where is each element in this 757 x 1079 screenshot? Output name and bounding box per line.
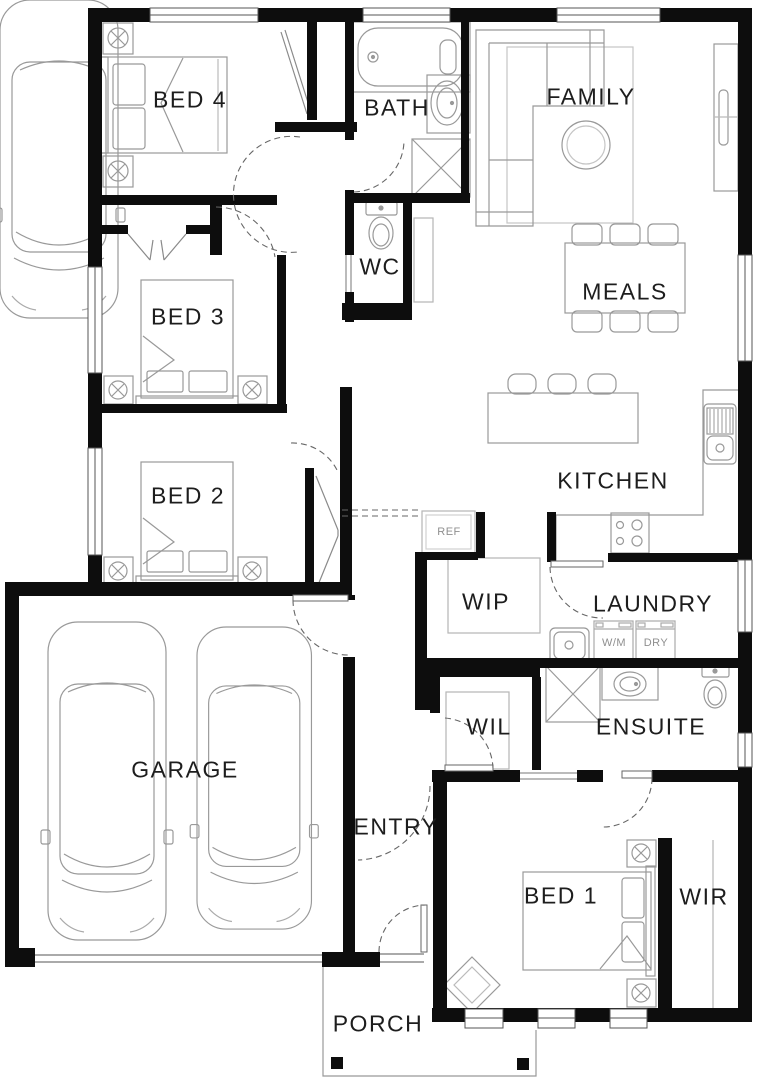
room-label-wc: WC [359, 254, 400, 281]
floor-plan-drawing [0, 0, 757, 1079]
wall-wc-west-a [345, 203, 354, 255]
wall-entry-west-b [343, 657, 355, 953]
wall-bed3-top-right [186, 225, 213, 234]
wall-wil-north [440, 665, 540, 677]
front-door-threshold [378, 954, 424, 962]
wall-robe-bottom [275, 122, 357, 132]
room-label-porch: PORCH [333, 1011, 424, 1038]
floor-plan: BED 4 BATH FAMILY WC BED 3 MEALS KITCHEN… [0, 0, 757, 1079]
walls-layer [5, 8, 752, 1070]
room-label-wip: WIP [462, 589, 510, 616]
wall-bed2-east [305, 468, 314, 595]
room-label-kitchen: KITCHEN [557, 468, 668, 495]
room-label-bed1: BED 1 [524, 883, 598, 910]
room-label-bed2: BED 2 [151, 483, 225, 510]
furniture-layer [0, 0, 738, 1076]
wall-exterior-right [738, 8, 752, 1022]
wall-wil-east [532, 677, 541, 773]
wall-hob-stub [547, 512, 556, 562]
porch-post-1 [331, 1057, 343, 1069]
wall-front [322, 952, 380, 967]
wall-bed4-bottom [102, 195, 277, 205]
wall-fridge-east [476, 512, 485, 558]
wall-garage-bottom-stub [5, 948, 35, 967]
wall-wc-east [403, 203, 412, 320]
room-label-entry: ENTRY [353, 814, 438, 841]
wall-bed3-bed2-divider [102, 404, 287, 413]
garage-door [33, 955, 322, 962]
wall-bed4-east [307, 22, 317, 120]
wall-bed3-top-left [102, 225, 128, 234]
wall-wir-west [658, 838, 672, 1010]
linen-cupboard [414, 218, 433, 302]
family-furniture [476, 30, 738, 226]
wall-bed3-east [277, 255, 286, 413]
wall-wir-north [652, 770, 738, 782]
wall-wc-bottom [342, 303, 410, 320]
room-label-family: FAMILY [546, 84, 635, 111]
wall-garage-left [5, 582, 19, 967]
bed1-furniture [444, 840, 656, 1013]
wall-hall-west [340, 387, 352, 600]
porch-post-2 [517, 1058, 529, 1070]
room-label-bed3: BED 3 [151, 304, 225, 331]
room-label-wil: WIL [466, 714, 511, 741]
car [0, 0, 125, 318]
room-label-meals: MEALS [582, 279, 667, 306]
wc-fixtures [366, 202, 397, 249]
wall-wip-west [415, 552, 427, 666]
room-label-bed4: BED 4 [153, 87, 227, 114]
wall-kitchen-laundry [608, 553, 738, 562]
wall-bath-west-upper [345, 22, 354, 132]
wall-bath-east [461, 22, 469, 203]
room-label-bath: BATH [364, 95, 430, 122]
wall-wil-west [430, 677, 440, 713]
wall-bed1-north-b [577, 770, 603, 782]
window [88, 8, 752, 1028]
room-label-garage: GARAGE [131, 757, 238, 784]
sliding-doors [345, 255, 577, 782]
room-label-ensuite: ENSUITE [596, 714, 706, 741]
wall-bath-west-a [345, 132, 354, 140]
windows-layer [88, 8, 752, 1028]
room-label-laundry: LAUNDRY [593, 591, 713, 618]
wall-garage-top [5, 582, 348, 596]
wall-bath-south [345, 193, 470, 203]
bed2-furniture [104, 462, 267, 585]
room-label-wir: WIR [679, 884, 728, 911]
bed3-furniture [104, 280, 267, 405]
wall-bed1-north-a [432, 770, 520, 782]
washer-label: W/M [602, 637, 626, 649]
dryer-label: DRY [644, 637, 669, 649]
fridge-label: REF [437, 526, 461, 538]
